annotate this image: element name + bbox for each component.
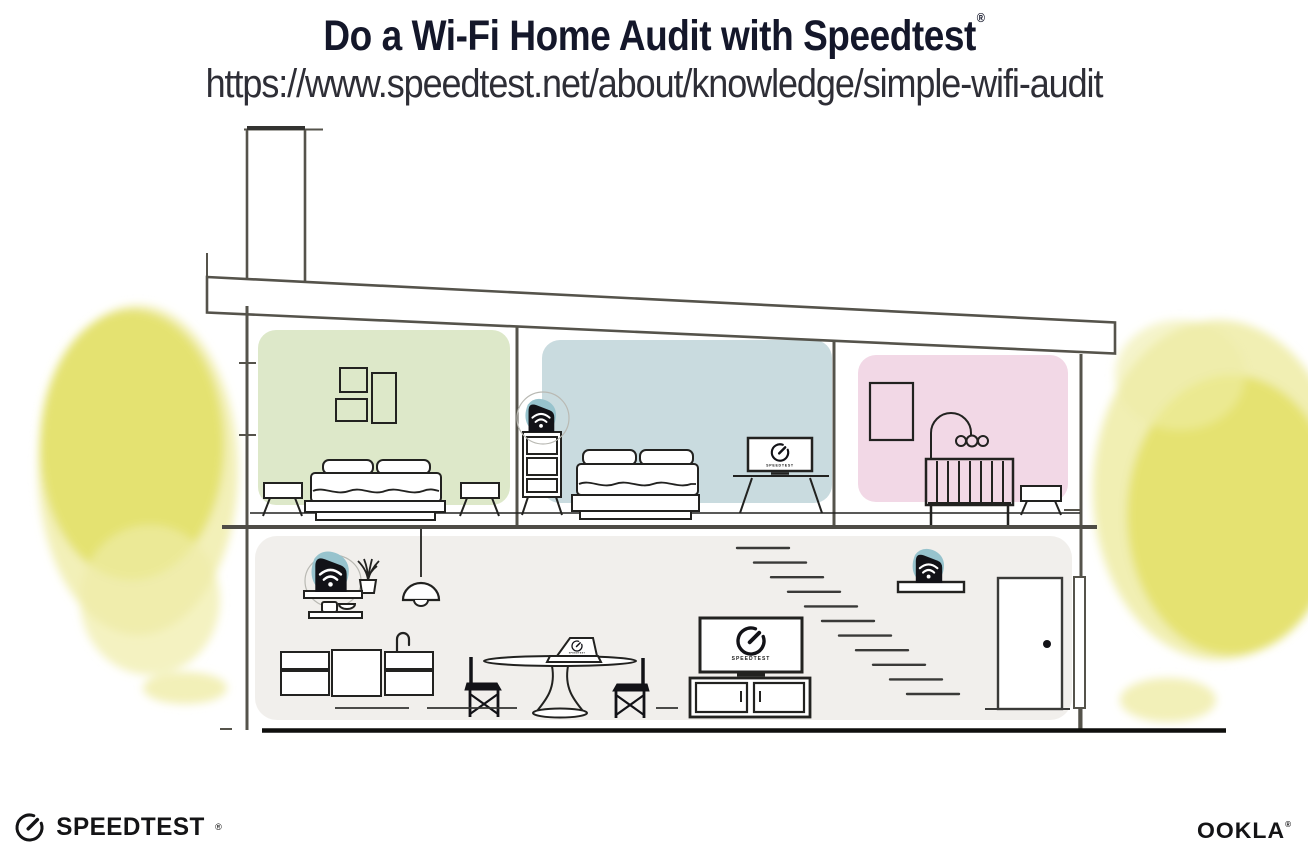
speedtest-registered-mark: ® <box>215 822 222 832</box>
chimney <box>244 128 323 288</box>
tree-right <box>1093 320 1308 722</box>
door <box>985 578 1070 709</box>
downspout <box>1074 577 1085 729</box>
ookla-logo: OOKLA® <box>1197 817 1292 843</box>
speedtest-logo-text: SPEEDTEST <box>56 813 205 842</box>
stool <box>1021 486 1061 515</box>
tree-left <box>38 305 238 704</box>
wall-shelf <box>898 582 964 592</box>
tv-screen-label: SPEEDTEST <box>766 464 794 468</box>
tv-screen-label: SPEEDTEST <box>732 656 771 662</box>
house-illustration: SPEEDTEST <box>0 0 1308 861</box>
ookla-registered-mark: ® <box>1285 820 1292 829</box>
speedtest-gauge-icon <box>14 811 46 843</box>
tv-screen <box>700 618 802 672</box>
laptop-screen-label: SPEEDTEST <box>569 653 586 655</box>
media-console <box>690 678 810 717</box>
infographic-canvas: Do a Wi-Fi Home Audit with Speedtest® ht… <box>0 0 1308 861</box>
wall-shelf <box>309 612 362 618</box>
door-knob <box>1043 640 1051 648</box>
tv-living-room: SPEEDTEST <box>700 618 802 675</box>
nursery-pink-wall <box>858 355 1068 502</box>
bowl <box>339 604 355 609</box>
wall-shelf <box>304 591 362 598</box>
ookla-logo-text: OOKLA <box>1197 817 1285 842</box>
cup <box>322 602 337 612</box>
bed <box>572 450 699 519</box>
speedtest-logo: SPEEDTEST® <box>14 811 222 843</box>
